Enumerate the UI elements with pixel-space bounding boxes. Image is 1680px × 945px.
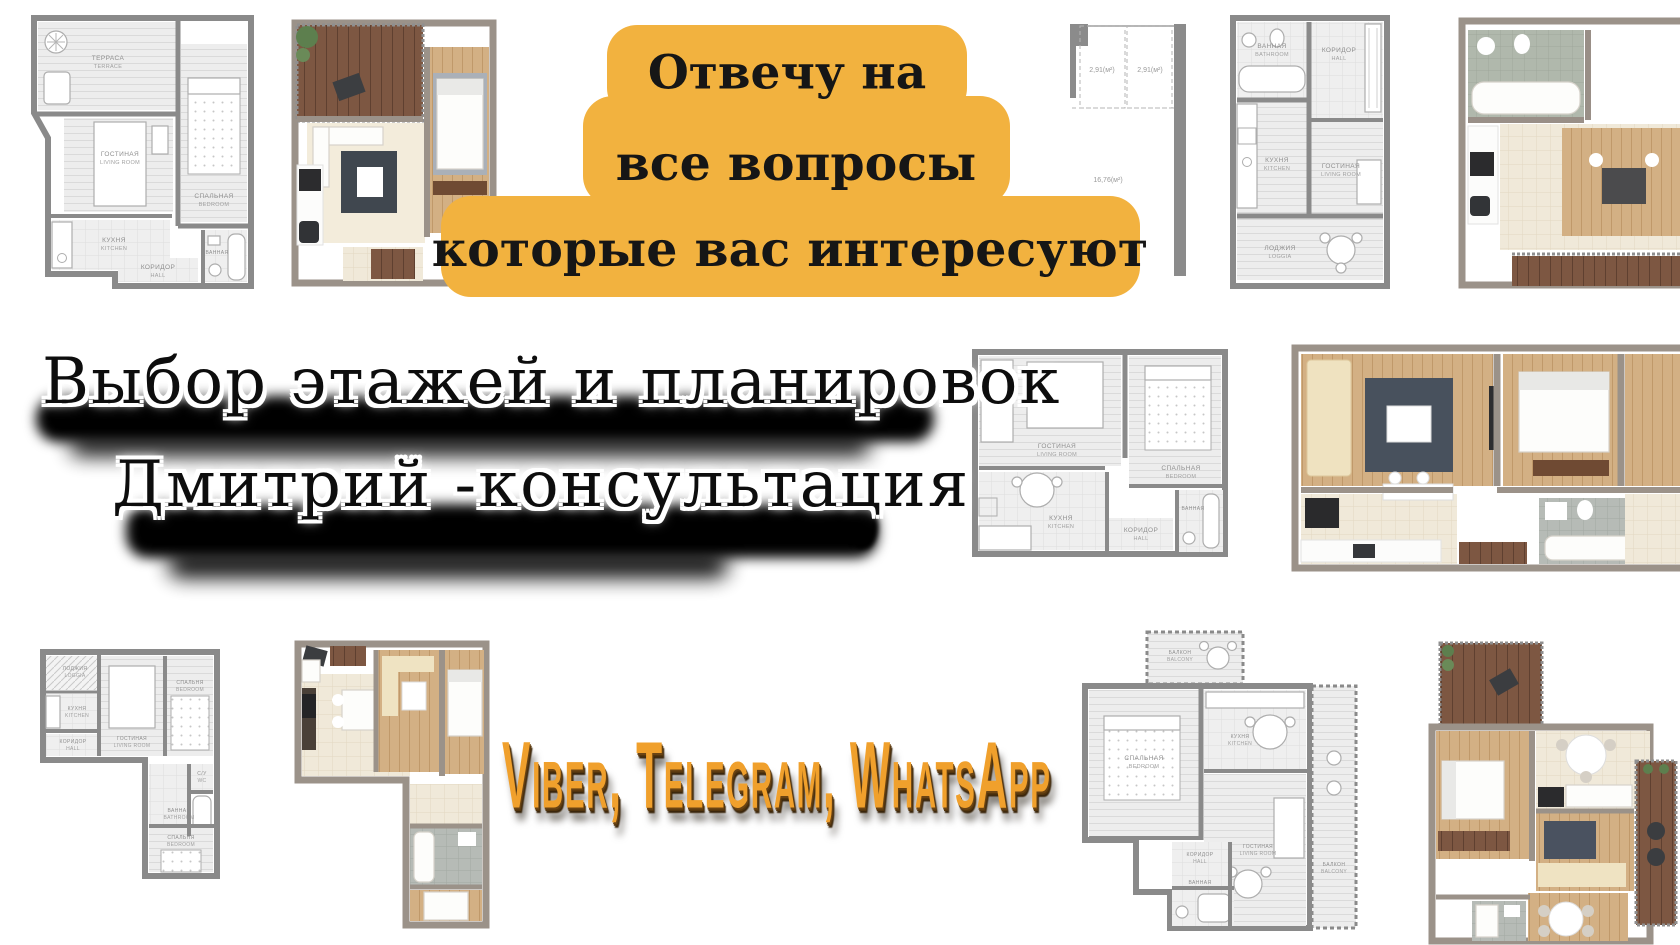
room-label-en: LIVING ROOM bbox=[1240, 851, 1277, 857]
banner-line-3: которые вас интересуют bbox=[432, 220, 1148, 278]
floorplan-lshape-blueprint: ЛОДЖИЯ LOGGIA КУХНЯ KITCHEN ГОСТИНАЯ LIV… bbox=[33, 632, 223, 880]
room-bedroom-3d bbox=[444, 650, 484, 774]
room-balcony-right-3d bbox=[1636, 761, 1676, 925]
room-hall: КОРИДОР HALL bbox=[46, 734, 98, 756]
room-label-ru: КОРИДОР bbox=[1322, 47, 1356, 54]
room-label-ru: С/У bbox=[197, 771, 207, 777]
room-label-ru: КУХНЯ bbox=[68, 706, 87, 712]
room-kitchen-3d bbox=[1468, 126, 1498, 224]
ad-canvas: ТЕРРАСА TERRACE СПАЛЬНАЯ BEDROOM ГОСТИНА… bbox=[0, 0, 1680, 945]
room-label-en: BEDROOM bbox=[176, 687, 204, 693]
room-living-3d bbox=[307, 123, 425, 243]
room-hall: КОРИДОР HALL bbox=[1311, 22, 1383, 118]
room-living: ГОСТИНАЯ LIVING ROOM bbox=[64, 118, 173, 212]
room-label-ru: СПАЛЬНАЯ bbox=[1161, 465, 1200, 472]
room-label-ru: ЛОДЖИЯ bbox=[1264, 245, 1295, 252]
floorplan-studio-3d-render bbox=[1452, 10, 1680, 295]
room-terrace-top-3d bbox=[1440, 643, 1542, 725]
floorplan-terraces-3d-render bbox=[1420, 635, 1680, 945]
room-kitchen: КУХНЯ KITCHEN bbox=[46, 694, 98, 730]
room-label-en: HALL bbox=[66, 746, 80, 752]
room-label-en: LIVING ROOM bbox=[1321, 172, 1361, 178]
room-terrace-wood bbox=[296, 25, 423, 121]
room-label-ru: ВАННАЯ bbox=[1181, 506, 1204, 512]
room-label-ru: КУХНЯ bbox=[1265, 157, 1289, 164]
room-bath-3d bbox=[410, 828, 482, 886]
room-label-en: KITCHEN bbox=[1264, 166, 1290, 172]
room-balcony-right: БАЛКОН BALCONY bbox=[1312, 686, 1356, 928]
room-label-en: LOGGIA bbox=[65, 673, 86, 679]
banner-line-1: Отвечу на bbox=[648, 46, 926, 101]
room-label-ru: ВАННАЯ bbox=[1188, 880, 1211, 886]
room-label-ru: ГОСТИНАЯ bbox=[1243, 844, 1273, 850]
room-label-ru: БАЛКОН bbox=[1323, 862, 1346, 868]
room-label-en: BEDROOM bbox=[167, 842, 195, 848]
headline-curl bbox=[852, 505, 878, 549]
room-living-3d bbox=[1536, 813, 1634, 891]
headline-shadow-2b bbox=[168, 552, 728, 578]
room-kitchen-3d bbox=[1536, 731, 1650, 809]
room-label-en: LOGGIA bbox=[1269, 254, 1292, 260]
messengers-block: Viber, Telegram, WhatsApp bbox=[502, 722, 1172, 782]
room-label-en: LIVING ROOM bbox=[1037, 452, 1077, 458]
room-label-en: HALL bbox=[1193, 859, 1207, 865]
room-label-en: HALL bbox=[151, 273, 166, 279]
room-label-en: KITCHEN bbox=[101, 246, 127, 252]
room-label-en: KITCHEN bbox=[1048, 524, 1074, 530]
room-label-en: TERRACE bbox=[94, 64, 122, 70]
room-wc: С/У WC bbox=[191, 764, 213, 790]
room-living-3d bbox=[1301, 354, 1493, 486]
room-label-ru: ВАННАЯ bbox=[1257, 43, 1286, 50]
messengers-text: Viber, Telegram, WhatsApp bbox=[502, 722, 1052, 831]
room-bedroom: СПАЛЬНАЯ BEDROOM bbox=[1129, 356, 1221, 484]
floorplan-studio-blueprint: ВАННАЯ BATHROOM КОРИДОР HALL КУХНЯ KITCH… bbox=[1225, 10, 1395, 292]
room-terrace: ТЕРРАСА TERRACE bbox=[38, 22, 178, 110]
room-bath-3d bbox=[1539, 498, 1639, 564]
room-bedroom2: СПАЛЬНЯ BEDROOM bbox=[149, 828, 213, 872]
room-label-ru: КОРИДОР bbox=[1186, 852, 1213, 858]
room-dining-3d bbox=[1528, 893, 1628, 941]
headline-shadow-1b bbox=[70, 436, 870, 456]
floorplan-terrace-blueprint: ТЕРРАСА TERRACE СПАЛЬНАЯ BEDROOM ГОСТИНА… bbox=[20, 8, 258, 290]
room-kitchen: КУХНЯ KITCHEN bbox=[1237, 102, 1307, 214]
room-label-ru: КУХНЯ bbox=[1049, 515, 1073, 522]
room-label-ru: СПАЛЬНАЯ bbox=[194, 193, 233, 200]
headline-line2: Дмитрий -консультация bbox=[112, 448, 970, 522]
room-kitchen: КУХНЯ KITCHEN bbox=[979, 472, 1105, 550]
room-kitchen-3d bbox=[297, 165, 323, 245]
room-label-ru: ГОСТИНАЯ bbox=[1038, 443, 1076, 450]
room-living: ГОСТИНАЯ LIVING ROOM bbox=[979, 356, 1121, 466]
room-label-ru: ТЕРРАСА bbox=[92, 55, 125, 62]
room-label-en: LIVING ROOM bbox=[114, 743, 151, 749]
headline-shadow-1 bbox=[36, 396, 934, 442]
room-bath-3d bbox=[1472, 901, 1526, 941]
room-bedroom-3d bbox=[1489, 354, 1621, 486]
room-label-ru: ВАННАЯ bbox=[205, 250, 228, 256]
room-bedroom: СПАЛЬНЯ BEDROOM bbox=[167, 656, 213, 756]
room-bath: ВАННАЯ bbox=[1179, 490, 1223, 552]
room-label-en: BALCONY bbox=[1321, 869, 1347, 875]
room-label-ru: КУХНЯ bbox=[1231, 734, 1250, 740]
hallway-3d bbox=[343, 247, 423, 281]
room-bath: ВАННАЯ bbox=[205, 230, 247, 282]
room-label-en: LIVING ROOM bbox=[100, 160, 140, 166]
room-living-3d bbox=[378, 650, 440, 772]
room-label-ru: ГОСТИНАЯ bbox=[117, 736, 147, 742]
headline-line1: Выбор этажей и планировок bbox=[42, 345, 1061, 419]
room-label-ru: СПАЛЬНЯ bbox=[176, 680, 203, 686]
room-label-ru: ГОСТИНАЯ bbox=[101, 151, 139, 158]
floorplan-tworoom-blueprint: ГОСТИНАЯ LIVING ROOM СПАЛЬНАЯ BEDROOM КУ… bbox=[965, 338, 1235, 566]
room-label-ru: КОРИДОР bbox=[141, 264, 175, 271]
floorplan-lshape-3d-render bbox=[290, 630, 495, 930]
room-bath: ВАННАЯ BATHROOM bbox=[1237, 22, 1307, 98]
room-label-ru: КОРИДОР bbox=[59, 739, 86, 745]
leg-corridor-3d bbox=[410, 784, 482, 824]
room-label-en: KITCHEN bbox=[65, 713, 89, 719]
room-bedroom: СПАЛЬНАЯ BEDROOM bbox=[181, 44, 247, 222]
room-bedroom2-3d bbox=[410, 890, 482, 921]
room-label-en: HALL bbox=[1134, 536, 1149, 542]
room-hall: КОРИДОР HALL bbox=[1109, 518, 1173, 550]
headline-shadow-2 bbox=[126, 504, 878, 558]
room-label-en: BEDROOM bbox=[1166, 474, 1197, 480]
room-hall: КОРИДОР HALL bbox=[118, 258, 198, 282]
room-label-en: BALCONY bbox=[1167, 657, 1193, 663]
area-label: 16,76(м²) bbox=[1093, 177, 1122, 184]
room-label-ru: БАЛКОН bbox=[1169, 650, 1192, 656]
room-bath-3d bbox=[1468, 30, 1584, 118]
area-label: 2,91(м²) bbox=[1137, 67, 1162, 74]
room-label-en: WC bbox=[198, 778, 207, 784]
room-label-en: KITCHEN bbox=[1228, 741, 1252, 747]
room-label-en: BATHROOM bbox=[1255, 52, 1289, 58]
room-label-ru: ГОСТИНАЯ bbox=[1322, 163, 1360, 170]
room-bedroom-3d bbox=[1436, 731, 1532, 859]
room-label-en: HALL bbox=[1332, 56, 1347, 62]
room-label-en: BEDROOM bbox=[199, 202, 230, 208]
room-balcony-3d bbox=[1512, 254, 1680, 286]
room-label-ru: ЛОДЖИЯ bbox=[63, 666, 88, 672]
room-kitchen: КУХНЯ KITCHEN bbox=[1204, 690, 1306, 770]
room-loggia: ЛОДЖИЯ LOGGIA bbox=[1237, 218, 1383, 280]
room-label-ru: КУХНЯ bbox=[102, 237, 126, 244]
floorplan-tworoom-3d-render bbox=[1283, 338, 1680, 575]
room-balcony-top: БАЛКОН BALCONY bbox=[1147, 632, 1243, 684]
area-label: 2,91(м²) bbox=[1089, 67, 1114, 74]
banner-line-2: все вопросы bbox=[616, 134, 977, 192]
room-main-3d bbox=[1500, 124, 1680, 250]
room-living: ГОСТИНАЯ LIVING ROOM bbox=[1311, 122, 1383, 214]
room-label-ru: КОРИДОР bbox=[1124, 527, 1158, 534]
room-loggia: ЛОДЖИЯ LOGGIA bbox=[46, 656, 104, 690]
room-living: ГОСТИНАЯ LIVING ROOM bbox=[101, 656, 163, 756]
